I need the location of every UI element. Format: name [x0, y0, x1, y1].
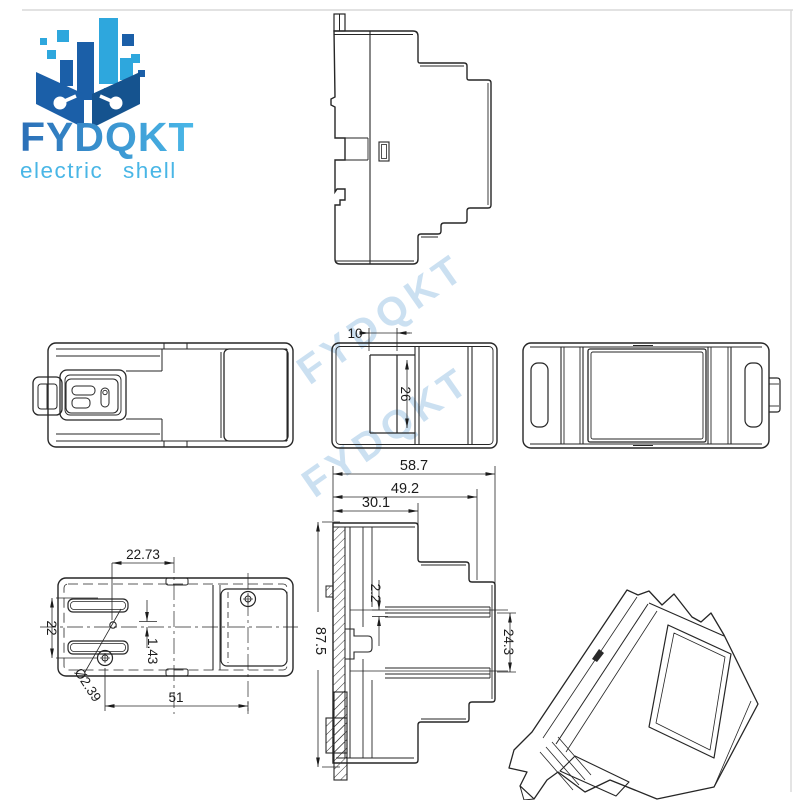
logo-subtitle: electric shell [20, 158, 177, 183]
isometric-3d-view [509, 590, 758, 800]
drawing-sheet: FYDQKT FYDQKT FYDQKT electric shell [0, 0, 800, 800]
dim-label-30-1: 30.1 [362, 495, 390, 511]
dim-label-51: 51 [168, 690, 183, 705]
dim-hole-to-center: 1.43 [139, 600, 160, 664]
logo-title: FYDQKT [20, 114, 195, 160]
dim-label-26: 26 [398, 386, 413, 401]
bottom-view: 22.73 22 1.43 Ø2.39 51 [40, 547, 298, 714]
dim-label-58-7: 58.7 [400, 458, 428, 474]
logo: FYDQKT electric shell [20, 18, 195, 183]
logo-icon [36, 18, 145, 128]
dim-label-87-5: 87.5 [312, 627, 328, 655]
technical-drawing: FYDQKT FYDQKT FYDQKT electric shell [0, 0, 800, 800]
section-view: 58.7 49.2 30.1 87.5 2.2 [312, 458, 516, 780]
dim-hole-offset: 22.73 [112, 547, 174, 620]
dim-label-2-2: 2.2 [368, 584, 383, 603]
back-view [523, 343, 780, 448]
dim-screw-spacing-v: 22 [44, 598, 98, 658]
pcb-rails [350, 607, 508, 678]
dim-label-22: 22 [44, 620, 59, 635]
dim-label-10: 10 [347, 326, 362, 341]
watermarks: FYDQKT FYDQKT [289, 246, 479, 507]
dim-label-22-73: 22.73 [126, 547, 160, 562]
dim-screw-spacing-h: 51 [105, 668, 248, 711]
side-profile-view [331, 14, 491, 264]
dim-label-1-43: 1.43 [145, 638, 160, 664]
dim-label-24-3: 24.3 [501, 629, 516, 655]
dim-top-width: 30.1 [333, 495, 418, 560]
dim-hole-diameter: Ø2.39 [71, 665, 104, 704]
dim-label-hole-dia: Ø2.39 [71, 665, 104, 704]
dim-rail-span: 24.3 [497, 613, 516, 672]
dim-label-49-2: 49.2 [391, 481, 419, 497]
top-view-with-din-clip [33, 343, 293, 447]
